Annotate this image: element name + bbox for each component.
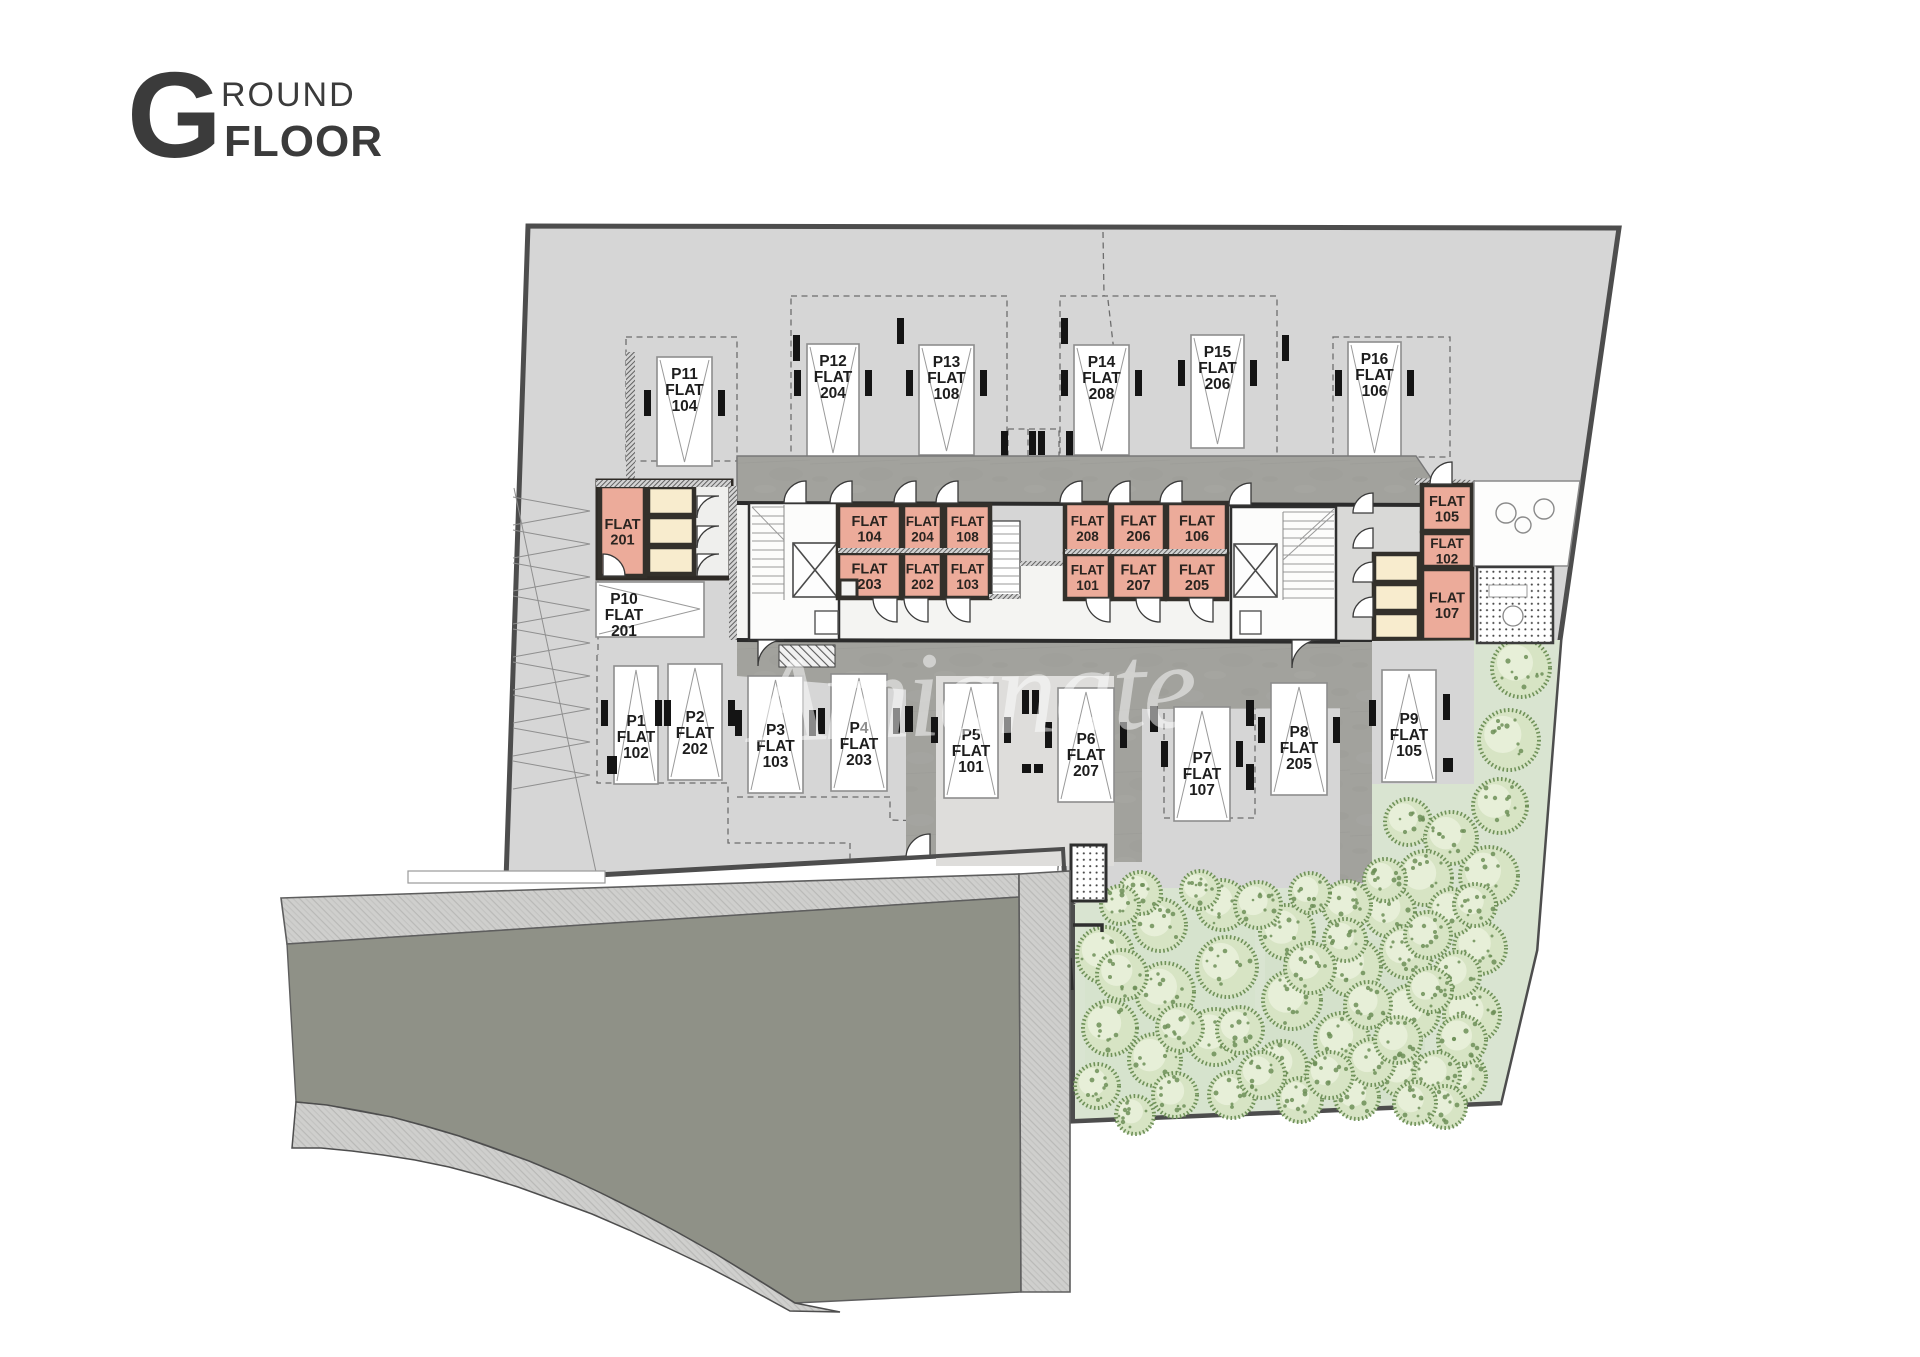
svg-text:FLAT: FLAT [605,607,644,624]
svg-text:P12: P12 [819,353,847,370]
svg-text:ROUND: ROUND [221,76,356,114]
svg-text:FLAT: FLAT [951,514,985,529]
svg-text:FLAT: FLAT [1082,370,1121,387]
svg-text:FLAT: FLAT [814,369,853,386]
svg-text:G: G [127,47,222,183]
svg-text:FLAT: FLAT [906,562,940,577]
svg-text:FLAT: FLAT [1390,727,1429,744]
svg-text:104: 104 [672,398,698,415]
svg-text:204: 204 [911,530,934,545]
svg-text:108: 108 [934,386,960,403]
svg-text:FLAT: FLAT [951,562,985,577]
svg-text:201: 201 [610,533,634,549]
svg-text:101: 101 [1076,578,1099,593]
svg-text:106: 106 [1185,529,1209,545]
svg-text:P11: P11 [671,366,698,383]
svg-text:FLAT: FLAT [1071,563,1105,578]
svg-text:208: 208 [1076,529,1099,544]
svg-text:FLAT: FLAT [676,725,715,742]
svg-text:FLAT: FLAT [852,562,888,578]
svg-text:207: 207 [1073,763,1099,780]
svg-text:102: 102 [1436,552,1459,567]
svg-text:105: 105 [1396,743,1422,760]
svg-text:107: 107 [1435,606,1459,622]
svg-text:205: 205 [1185,578,1209,594]
svg-text:P8: P8 [1290,724,1309,741]
svg-text:FLAT: FLAT [852,514,888,530]
svg-text:FLAT: FLAT [927,370,966,387]
svg-text:FLAT: FLAT [1179,514,1215,530]
svg-text:P13: P13 [933,354,961,371]
svg-text:P2: P2 [686,709,705,726]
svg-text:FLAT: FLAT [1179,563,1215,579]
svg-text:Amianate: Amianate [741,618,1197,769]
svg-text:P9: P9 [1400,711,1419,728]
svg-text:105: 105 [1435,510,1459,526]
svg-text:102: 102 [623,745,649,762]
svg-text:202: 202 [682,741,708,758]
svg-text:208: 208 [1089,386,1115,403]
svg-text:106: 106 [1362,383,1388,400]
svg-text:FLAT: FLAT [1121,514,1157,530]
svg-text:P15: P15 [1204,344,1232,361]
svg-text:205: 205 [1286,756,1312,773]
svg-text:107: 107 [1189,782,1215,799]
svg-text:FLAT: FLAT [1121,563,1157,579]
svg-text:FLAT: FLAT [617,729,656,746]
svg-text:FLAT: FLAT [1355,367,1394,384]
svg-text:201: 201 [611,623,637,640]
svg-text:FLAT: FLAT [906,514,940,529]
svg-text:FLOOR: FLOOR [224,117,383,166]
svg-text:FLAT: FLAT [1430,536,1464,551]
svg-text:101: 101 [958,759,984,776]
svg-text:FLAT: FLAT [1071,514,1105,529]
svg-text:202: 202 [911,577,934,592]
svg-text:P16: P16 [1361,351,1389,368]
svg-text:108: 108 [956,530,979,545]
svg-text:104: 104 [857,530,881,546]
svg-text:P1: P1 [627,713,646,730]
svg-text:203: 203 [857,577,881,593]
svg-text:FLAT: FLAT [1429,494,1465,510]
svg-text:FLAT: FLAT [1280,740,1319,757]
svg-text:FLAT: FLAT [1198,360,1237,377]
svg-text:P14: P14 [1088,354,1116,371]
svg-text:P10: P10 [610,591,638,608]
svg-text:204: 204 [820,385,846,402]
svg-text:206: 206 [1126,529,1150,545]
svg-text:103: 103 [956,577,979,592]
svg-text:FLAT: FLAT [1183,766,1222,783]
svg-text:FLAT: FLAT [665,382,704,399]
svg-text:FLAT: FLAT [1429,591,1465,607]
svg-text:FLAT: FLAT [605,517,641,533]
svg-text:206: 206 [1205,376,1231,393]
svg-text:207: 207 [1126,578,1150,594]
